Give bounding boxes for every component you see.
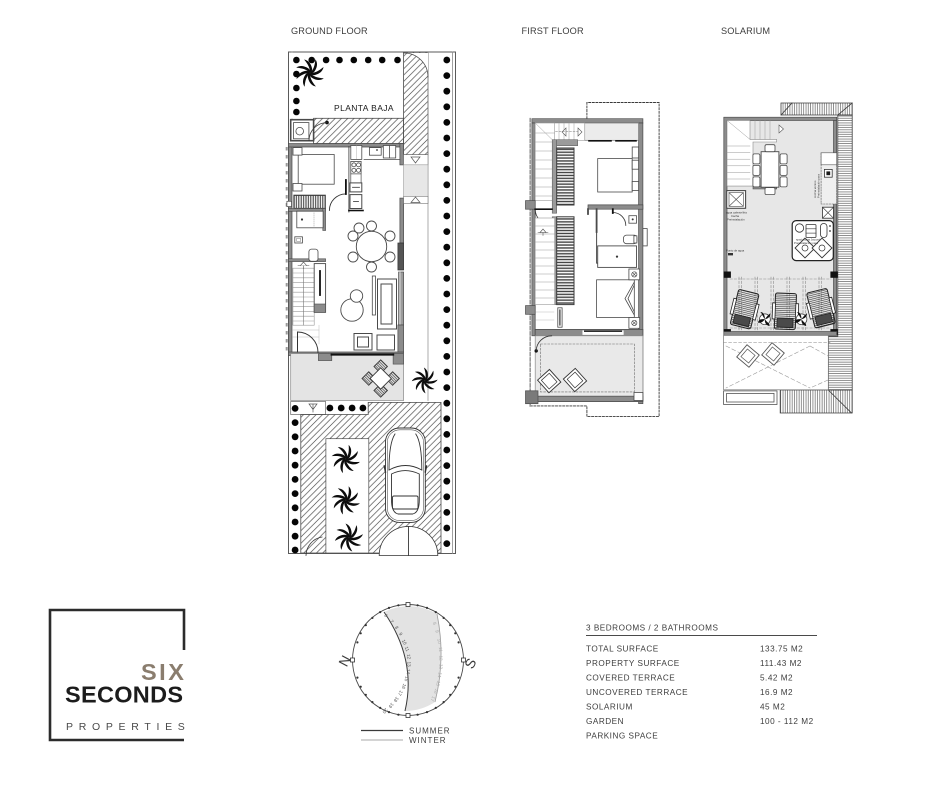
- svg-text:S: S: [461, 656, 480, 672]
- svg-text:14: 14: [406, 669, 412, 675]
- svg-text:20: 20: [381, 707, 388, 714]
- svg-text:15: 15: [403, 676, 409, 683]
- svg-text:133.75 M2: 133.75 M2: [760, 645, 803, 654]
- svg-text:10: 10: [436, 638, 442, 644]
- svg-text:PROPERTY SURFACE: PROPERTY SURFACE: [586, 659, 680, 668]
- svg-text:19: 19: [387, 702, 394, 709]
- svg-text:100 - 112 M2: 100 - 112 M2: [760, 717, 814, 726]
- svg-text:UNCOVERED TERRACE: UNCOVERED TERRACE: [586, 688, 688, 697]
- svg-text:5.42 M2: 5.42 M2: [760, 674, 793, 683]
- svg-text:PARKING SPACE: PARKING SPACE: [586, 732, 658, 741]
- svg-text:COVERED TERRACE: COVERED TERRACE: [586, 674, 675, 683]
- svg-text:111.43 M2: 111.43 M2: [760, 659, 802, 668]
- svg-text:3 BEDROOMS / 2 BATHROOMS: 3 BEDROOMS / 2 BATHROOMS: [586, 624, 718, 633]
- svg-text:18: 18: [392, 696, 399, 703]
- svg-text:FIRST FLOOR: FIRST FLOOR: [522, 26, 584, 36]
- svg-text:N: N: [335, 653, 354, 669]
- svg-text:Preinstalación para: Preinstalación para: [794, 241, 818, 245]
- svg-text:SECONDS: SECONDS: [65, 682, 183, 708]
- svg-text:13: 13: [406, 661, 411, 667]
- svg-text:13: 13: [438, 664, 443, 670]
- svg-text:WINTER: WINTER: [409, 736, 447, 745]
- svg-text:12: 12: [439, 656, 444, 662]
- svg-text:TOTAL SURFACE: TOTAL SURFACE: [586, 645, 659, 654]
- svg-text:SOLARIUM: SOLARIUM: [586, 703, 633, 712]
- svg-text:16.9 M2: 16.9 M2: [760, 688, 793, 697]
- svg-text:11: 11: [438, 647, 443, 653]
- svg-text:PLANTA BAJA: PLANTA BAJA: [334, 103, 394, 113]
- svg-text:45 M2: 45 M2: [760, 703, 785, 712]
- svg-text:Punto de agua: Punto de agua: [726, 249, 745, 253]
- svg-text:GROUND FLOOR: GROUND FLOOR: [291, 26, 368, 36]
- svg-text:GARDEN: GARDEN: [586, 717, 624, 726]
- svg-text:PROPERTIES: PROPERTIES: [66, 721, 191, 733]
- svg-text:SOLARIUM: SOLARIUM: [721, 26, 770, 36]
- svg-text:16: 16: [401, 683, 408, 690]
- svg-text:17: 17: [397, 690, 404, 697]
- svg-text:Preinstalación: Preinstalación: [727, 218, 745, 222]
- svg-text:SUMMER: SUMMER: [409, 727, 451, 736]
- svg-text:Preinstalación para: Preinstalación para: [817, 174, 821, 198]
